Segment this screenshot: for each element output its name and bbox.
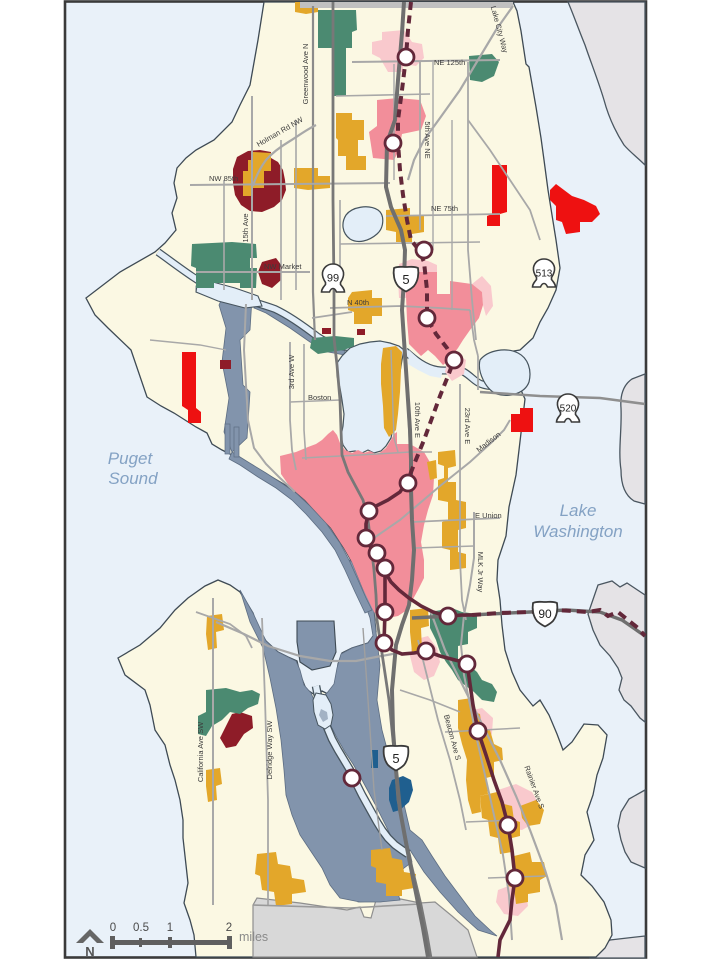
svg-text:10th Ave E: 10th Ave E — [413, 402, 422, 438]
svg-text:MLK Jr Way: MLK Jr Way — [476, 552, 485, 593]
svg-text:NW 85th: NW 85th — [209, 174, 238, 183]
svg-text:Puget: Puget — [108, 449, 154, 468]
svg-text:NE 125th: NE 125th — [434, 58, 465, 67]
svg-text:NE 75th: NE 75th — [431, 204, 458, 213]
svg-text:15th Ave: 15th Ave — [241, 213, 250, 242]
svg-text:5th Ave NE: 5th Ave NE — [423, 121, 432, 158]
svg-text:23rd Ave E: 23rd Ave E — [463, 408, 472, 445]
svg-text:NW Market: NW Market — [264, 262, 302, 271]
svg-text:Lake: Lake — [560, 501, 597, 520]
svg-text:E Union: E Union — [475, 511, 502, 520]
svg-text:N: N — [85, 944, 94, 959]
svg-text:99: 99 — [327, 273, 339, 285]
svg-text:2: 2 — [226, 922, 232, 934]
svg-text:California Ave SW: California Ave SW — [196, 721, 205, 782]
svg-text:1: 1 — [167, 922, 173, 934]
svg-text:0.5: 0.5 — [133, 922, 149, 934]
svg-text:520: 520 — [560, 404, 577, 415]
svg-text:Sound: Sound — [108, 469, 158, 488]
svg-text:90: 90 — [538, 607, 552, 621]
svg-text:3rd Ave W: 3rd Ave W — [287, 354, 296, 389]
svg-text:Boston: Boston — [308, 393, 331, 402]
svg-text:513: 513 — [536, 269, 553, 280]
svg-text:Delridge Way SW: Delridge Way SW — [265, 720, 274, 780]
svg-text:Greenwood Ave N: Greenwood Ave N — [301, 44, 310, 105]
svg-text:Washington: Washington — [533, 522, 622, 541]
svg-text:miles: miles — [239, 930, 268, 944]
svg-text:5: 5 — [402, 272, 409, 287]
svg-text:N 40th: N 40th — [347, 298, 369, 307]
svg-text:5: 5 — [392, 751, 399, 766]
svg-text:0: 0 — [110, 922, 116, 934]
